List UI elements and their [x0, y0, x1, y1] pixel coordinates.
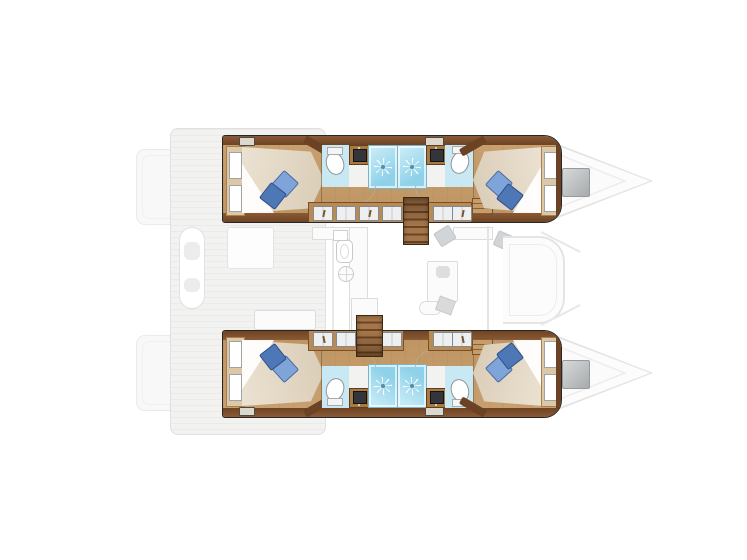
- bulkhead-line: [321, 348, 322, 408]
- hull-window: [229, 374, 242, 401]
- catamaran-floorplan: [0, 0, 747, 560]
- forward-vanity-sink: [426, 145, 447, 165]
- locker-door: [433, 332, 453, 347]
- wardrobe-lockers: [308, 202, 404, 223]
- sink-basin-icon: [353, 149, 367, 162]
- bulkhead-line: [473, 145, 474, 205]
- wardrobe-lockers: [428, 202, 472, 223]
- foredeck-hatch-icon: [562, 168, 590, 197]
- sink-basin-icon: [430, 391, 444, 404]
- aft-vanity-sink: [349, 388, 370, 408]
- cockpit-table: [227, 227, 274, 269]
- shower-jets-icon: [374, 377, 392, 395]
- locker-door: [313, 332, 333, 347]
- deck-hatch-icon: [425, 407, 444, 416]
- sink-bowl: [340, 244, 349, 259]
- bulkhead-line: [473, 348, 474, 408]
- hanger-icon: [461, 336, 464, 343]
- aft-shower-stall: [368, 145, 398, 189]
- hull-window: [229, 185, 242, 212]
- toilet-tank: [327, 398, 343, 406]
- shower-jets-icon: [374, 158, 392, 176]
- outboard-side-deck: [223, 408, 561, 417]
- bench-cushion: [184, 242, 200, 260]
- locker-door: [336, 206, 356, 221]
- starboard-hull: [222, 330, 562, 418]
- companionway-stairs-port: [403, 197, 429, 245]
- locker-door: [452, 332, 472, 347]
- companionway-stairs-starboard: [356, 315, 383, 357]
- table-setting: [436, 266, 450, 278]
- faucet-icon: [435, 404, 437, 406]
- foredeck-hatch-icon: [562, 360, 590, 389]
- sink-basin-icon: [353, 391, 367, 404]
- bow-bulkhead-trim: [556, 144, 562, 216]
- hull-window: [229, 152, 242, 179]
- hull-shell: [222, 330, 562, 418]
- locker-door: [382, 332, 402, 347]
- galley-counter: [312, 227, 352, 240]
- mast-post: [487, 226, 489, 331]
- shower-jets-icon: [403, 158, 421, 176]
- faucet-icon: [358, 147, 360, 149]
- galley-sink-icon: [336, 240, 353, 263]
- aft-shower-stall: [368, 364, 398, 408]
- wardrobe-lockers: [428, 330, 472, 351]
- cockpit-bench: [179, 227, 205, 309]
- locker-door: [313, 206, 333, 221]
- shower-jets-icon: [403, 377, 421, 395]
- locker-door: [382, 206, 402, 221]
- aft-vanity-sink: [349, 145, 370, 165]
- forward-vanity-sink: [426, 388, 447, 408]
- sofa-cushion-line: [509, 244, 557, 316]
- hull-window: [229, 341, 242, 368]
- faucet-icon: [358, 404, 360, 406]
- saloon-bench: [254, 310, 316, 330]
- faucet-icon: [435, 147, 437, 149]
- deck-hatch-icon: [239, 407, 255, 416]
- saloon-sofa: [503, 236, 565, 324]
- hanger-icon: [368, 210, 371, 217]
- saloon-aft-wall-line: [332, 226, 334, 332]
- hanger-icon: [461, 210, 464, 217]
- bulkhead-line: [321, 145, 322, 205]
- bow-bulkhead-trim: [556, 337, 562, 409]
- hanger-icon: [322, 336, 325, 343]
- bench-cushion: [184, 278, 200, 292]
- port-hull: [222, 135, 562, 223]
- forward-shower-stall: [397, 364, 427, 408]
- locker-door: [433, 206, 453, 221]
- locker-door: [359, 206, 379, 221]
- stove-icon: [338, 266, 354, 282]
- hanger-icon: [322, 210, 325, 217]
- hull-shell: [222, 135, 562, 223]
- forward-shower-stall: [397, 145, 427, 189]
- sink-basin-icon: [430, 149, 444, 162]
- toilet-tank: [327, 147, 343, 155]
- deck-hatch-icon: [239, 137, 255, 146]
- locker-door: [452, 206, 472, 221]
- outboard-side-deck: [223, 136, 561, 145]
- locker-door: [336, 332, 356, 347]
